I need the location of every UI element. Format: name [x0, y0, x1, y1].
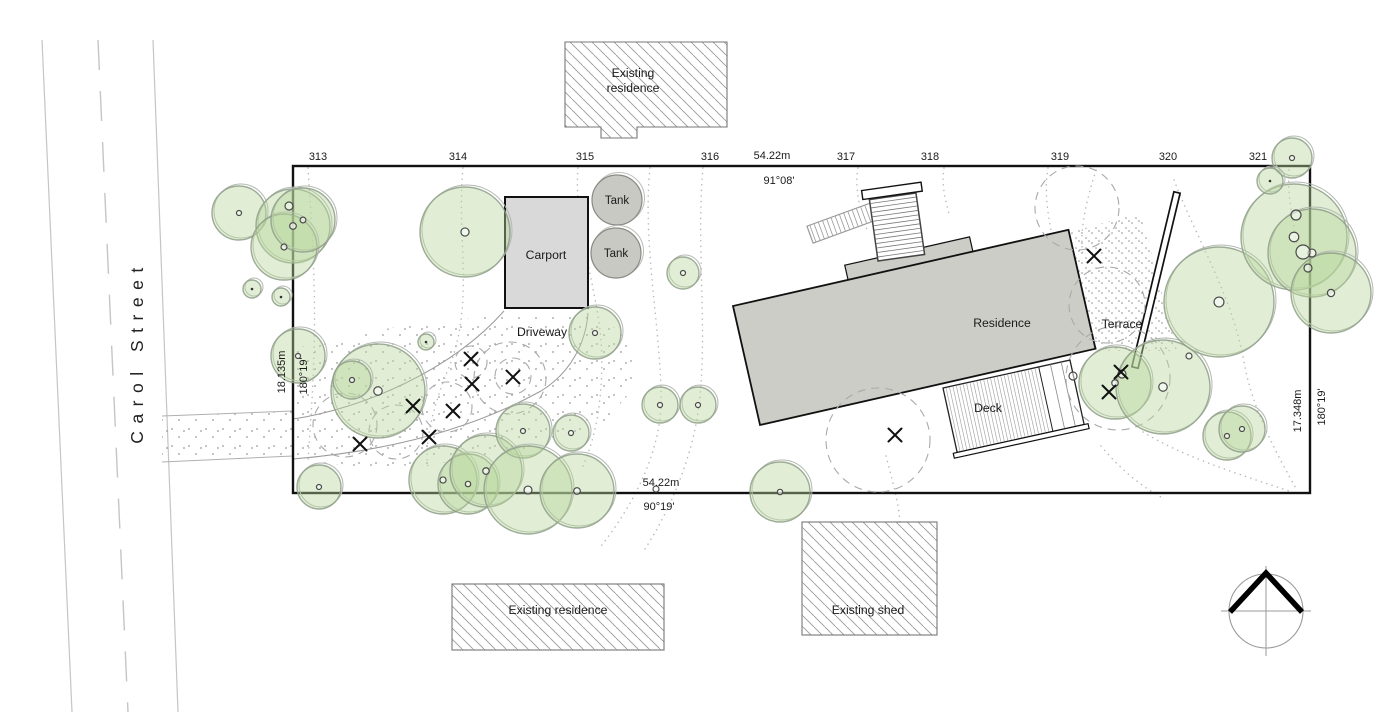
tree-trunk [1186, 353, 1192, 359]
tree-trunk [1291, 210, 1301, 220]
tree-trunk [593, 331, 598, 336]
tree-trunk-dot [1269, 180, 1272, 183]
dim-top-bearing: 91°08' [764, 175, 795, 187]
existing-residence-bottom-label: Existing residence [509, 603, 608, 617]
tree-trunk [1290, 156, 1295, 161]
tree-trunk [777, 489, 782, 494]
existing-residence-top: Existing residence [565, 42, 727, 138]
tanks [591, 173, 645, 279]
tree-trunk [696, 403, 701, 408]
contour-line [1101, 446, 1161, 497]
tree-trunk [237, 211, 242, 216]
existing-shed: Existing shed [802, 522, 937, 635]
tree-trunk [300, 217, 306, 223]
tree-trunk [1327, 289, 1334, 296]
driveway-crossover [162, 411, 293, 462]
contour-line [643, 168, 703, 552]
tree-trunk [658, 403, 663, 408]
existing-shed-label: Existing shed [832, 603, 905, 617]
dim-bottom-length: 54.22m [643, 477, 680, 489]
tree-trunk [1240, 427, 1245, 432]
tree-trunk [440, 477, 446, 483]
tank-upper-label: Tank [605, 195, 630, 207]
tree-trunk [350, 378, 355, 383]
tree-trunk [461, 228, 469, 236]
existing-residence-bottom: Existing residence [452, 584, 664, 650]
survey-mark-314: 314 [449, 151, 467, 163]
deck-label: Deck [974, 401, 1003, 415]
tree-trunk [1159, 383, 1167, 391]
driveway-label: Driveway [517, 325, 568, 339]
existing-residence-bottom-outline [452, 584, 664, 650]
existing-shed-outline [802, 522, 937, 635]
tree-trunk [1225, 434, 1230, 439]
survey-mark-318: 318 [921, 151, 939, 163]
road-edge-left [42, 40, 72, 712]
tree-trunk [524, 486, 532, 494]
dashed-canopy [826, 388, 930, 492]
tree-trunk [465, 481, 470, 486]
survey-mark-319: 319 [1051, 151, 1069, 163]
survey-mark-317: 317 [837, 151, 855, 163]
dim-top-length: 54.22m [754, 150, 791, 162]
road-edge-right [153, 40, 178, 712]
dim-right-length: 17.348m [1292, 390, 1304, 433]
dim-right-bearing: 180°19' [1316, 388, 1328, 425]
tree-trunk [574, 488, 581, 495]
survey-mark-313: 313 [309, 151, 327, 163]
contour-line [1046, 168, 1051, 230]
tree-trunk [1069, 372, 1077, 380]
crossover-stipple [162, 411, 293, 462]
tree-trunk [521, 429, 526, 434]
site-plan-drawing: Existing residence Existing residence Ex… [0, 0, 1400, 712]
tree-trunk [317, 485, 322, 490]
road-carol-street [42, 40, 178, 712]
tree-trunk [569, 431, 574, 436]
stairs [862, 182, 931, 262]
survey-mark-321: 321 [1249, 151, 1267, 163]
tree-trunk-dot [280, 296, 283, 299]
dim-left-bearing: 180°19' [298, 357, 310, 394]
survey-mark-316: 316 [701, 151, 719, 163]
dim-bottom-bearing: 90°19' [644, 501, 675, 513]
tree-trunk-dot [251, 288, 254, 291]
survey-mark-320: 320 [1159, 151, 1177, 163]
tree-trunk [681, 271, 686, 276]
survey-mark-315: 315 [576, 151, 594, 163]
tree-trunk [281, 244, 287, 250]
carport-label: Carport [526, 248, 567, 262]
tree-trunk [1289, 232, 1299, 242]
tree-trunk [285, 202, 293, 210]
north-arrow [1221, 566, 1311, 656]
tree-trunk [1304, 264, 1312, 272]
tree-trunk [1214, 297, 1224, 307]
tank-lower-label: Tank [604, 248, 629, 260]
terrace-label: Terrace [1102, 317, 1143, 331]
ramp [807, 203, 877, 243]
tree-trunk [483, 468, 489, 474]
site-plan-page: Existing residence Existing residence Ex… [0, 0, 1400, 712]
tree-trunk [374, 387, 382, 395]
existing-residence-top-label-1: Existing [612, 66, 655, 80]
street-name: Carol Street [127, 260, 147, 443]
dim-left-length: 18.135m [276, 351, 288, 394]
tree-trunk-dot [425, 341, 428, 344]
existing-residence-top-label-2: residence [607, 81, 660, 95]
contour-line [943, 168, 949, 214]
tree-trunk [290, 223, 297, 230]
residence-label: Residence [973, 316, 1031, 330]
tree-trunk [1296, 245, 1310, 259]
road-centerline [98, 40, 128, 712]
